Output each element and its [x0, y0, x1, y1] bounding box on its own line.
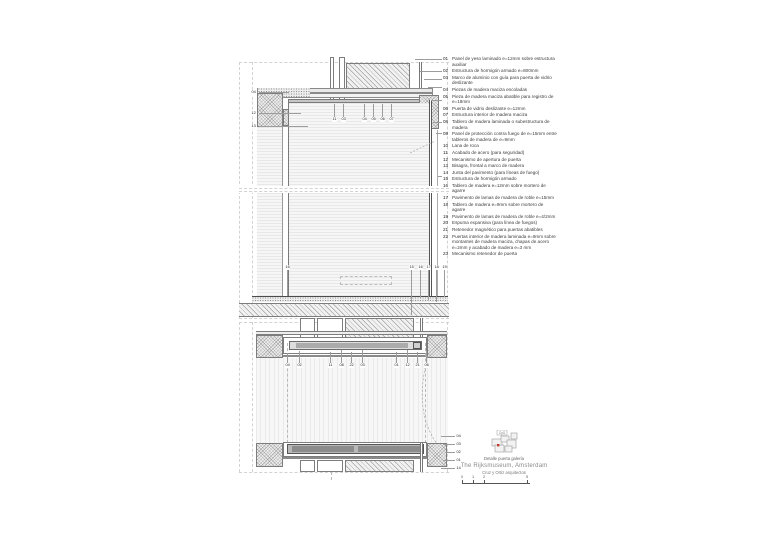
leader-line	[351, 352, 352, 363]
section-border-bottom	[239, 318, 449, 319]
scale-label: 2	[483, 475, 485, 479]
title-block: CyO Detalle puerta galería The Rijksmuse…	[452, 430, 556, 475]
legend-item-text: Junta del pavimento (para líneas de fueg…	[452, 170, 539, 176]
site-plan-icon: CyO	[486, 430, 520, 456]
bottom-door-leaf-1	[292, 446, 354, 452]
plan-border-left2	[252, 322, 253, 472]
legend-item: 07Estructura interior de madera maciza	[443, 112, 557, 118]
legend-item-number: 23	[443, 251, 450, 257]
plan-border-left	[239, 322, 240, 472]
legend-item-text: Piezas de madera maciza encoladas	[452, 87, 527, 93]
leader-line	[426, 350, 427, 363]
legend-item: 13Bisagra, frontal a marco de madera	[443, 163, 557, 169]
legend-item: 15Estructura de hormigón armado	[443, 176, 557, 182]
scale-tick	[484, 480, 485, 483]
legend-item-text: Espuma expansiva (para línea de fuegos)	[452, 220, 537, 226]
leader-line	[373, 104, 374, 117]
scale-bar: 0125	[462, 475, 530, 485]
wall-lining-left	[257, 127, 283, 296]
leader-line	[420, 71, 442, 72]
leader-line	[415, 59, 442, 60]
leader-line	[259, 92, 289, 93]
callout-01: 01	[456, 458, 461, 463]
legend-item: 12Mecanismo de apertura de puerta	[443, 157, 557, 163]
legend-item: 23Mecanismo retenedor de puerta	[443, 251, 557, 257]
callout-12: 12	[251, 111, 256, 116]
legend-item: 09Panel de protección contra fuego de e=…	[443, 131, 557, 142]
scale-tick	[527, 480, 528, 483]
legend-item-number: 20	[443, 220, 450, 226]
leader-line	[407, 350, 408, 363]
legend-item: 14Junta del pavimento (para líneas de fu…	[443, 170, 557, 176]
legend-item-number: 01	[443, 56, 450, 67]
leader-line	[436, 270, 437, 302]
legend: 01Panel de yeso laminado e=12mm sobre es…	[443, 56, 557, 258]
legend-item-number: 07	[443, 112, 450, 118]
sheet-title: The Rijksmuseum, Amsterdam	[452, 463, 556, 469]
callout-22: 22	[349, 363, 354, 368]
callout-02: 02	[456, 450, 461, 455]
callout-05: 05	[371, 117, 376, 122]
callout-04: 04	[285, 363, 290, 368]
plan-bottom-post-a	[300, 460, 315, 472]
plan-block-left	[256, 335, 283, 358]
callout-03: 03	[341, 117, 346, 122]
callout-17: 17	[426, 265, 431, 270]
scale-label: 5	[526, 475, 528, 479]
door-end-cap	[413, 342, 421, 349]
leader-line	[287, 270, 288, 296]
legend-item-text: Acabado de acero (para seguridad)	[452, 150, 524, 156]
callout-04: 04	[251, 90, 256, 95]
leader-line	[424, 79, 442, 80]
callout-11: 11	[332, 117, 337, 122]
leader-line	[428, 87, 442, 88]
legend-item-text: Estructura interior de madera maciza	[452, 112, 527, 118]
callout-11: 11	[328, 363, 333, 368]
callout-06: 06	[424, 363, 429, 368]
callout-03: 03	[360, 363, 365, 368]
scale-label: 1	[472, 475, 474, 479]
callout-04: 04	[456, 434, 461, 439]
plan-border-top	[239, 322, 449, 323]
callout-14: 14	[456, 466, 461, 471]
legend-item: 05Pieza de madera maciza abatible para r…	[443, 94, 557, 105]
legend-item: 21Retenedor magnético para puertas abati…	[443, 227, 557, 233]
legend-item: 19Pavimento de lamas de madera de roble …	[443, 214, 557, 220]
legend-item-number: 18	[443, 202, 450, 213]
legend-item-text: Estructura de hormigón armado e=800mm	[452, 68, 538, 74]
break-line-1	[239, 188, 449, 189]
leader-line	[444, 270, 445, 297]
floor-slab	[239, 303, 449, 317]
legend-item-text: Lana de roca	[452, 143, 479, 149]
legend-item-text: Tablero de madera e=9mm sobre mortero de…	[452, 202, 557, 213]
jamb-block-left	[257, 93, 283, 127]
legend-item-text: Mecanismo retenedor de puerta	[452, 251, 517, 257]
leader-line	[364, 104, 365, 117]
callout-16: 16	[285, 265, 290, 270]
legend-item-number: 17	[443, 195, 450, 201]
legend-item-text: Tablero de madera laminada o subestructu…	[452, 119, 557, 130]
leader-line	[287, 353, 288, 363]
leader-line	[330, 352, 331, 363]
legend-item-text: Puerta de vidrio deslizante e=12mm	[452, 106, 525, 112]
plan-icon-label: CyO	[499, 431, 506, 435]
plan-bottom-post-b	[317, 460, 343, 472]
legend-item-text: Puertas interior de madera laminada e=9m…	[452, 234, 557, 251]
callout-06: 06	[380, 117, 385, 122]
legend-item-text: Marco de aluminio con guía para puerta d…	[452, 75, 557, 86]
leader-line	[420, 270, 421, 298]
leader-line	[428, 270, 429, 300]
legend-item: 20Espuma expansiva (para línea de fuegos…	[443, 220, 557, 226]
leader-line	[433, 122, 442, 123]
legend-item: 22Puertas interior de madera laminada e=…	[443, 234, 557, 251]
legend-item-text: Tablero de madera e=12mm sobre mortero d…	[452, 183, 557, 194]
legend-item-text: Pavimento de lamas de madera de roble e=…	[452, 214, 555, 220]
plan-bottom-concrete	[345, 460, 414, 472]
plan-border-bottom	[239, 472, 449, 473]
legend-item: 11Acabado de acero (para seguridad)	[443, 150, 557, 156]
callout-03: 03	[456, 442, 461, 447]
leader-line	[299, 351, 300, 363]
legend-item-number: 03	[443, 75, 450, 86]
sliding-door-core	[296, 343, 408, 348]
legend-item: 03Marco de aluminio con guía para puerta…	[443, 75, 557, 86]
legend-item: 16Tablero de madera e=12mm sobre mortero…	[443, 183, 557, 194]
legend-item-number: 04	[443, 87, 450, 93]
legend-item-text: Retenedor magnético para puertas abatibl…	[452, 227, 543, 233]
plan-tail-dash	[331, 472, 332, 480]
legend-item: 18Tablero de madera e=9mm sobre mortero …	[443, 202, 557, 213]
floor-screed	[252, 297, 448, 302]
leader-line	[436, 133, 442, 134]
legend-item-number: 22	[443, 234, 450, 251]
drawing-sheet: 01Panel de yeso laminado e=12mm sobre es…	[0, 0, 780, 536]
recessed-handle-dashed	[340, 276, 392, 285]
leader-line	[417, 352, 418, 363]
leader-line	[259, 126, 308, 127]
legend-item: 02Estructura de hormigón armado e=800mm	[443, 68, 557, 74]
callout-02: 02	[297, 363, 302, 368]
legend-item-number: 05	[443, 94, 450, 105]
legend-item: 06Puerta de vidrio deslizante e=12mm	[443, 106, 557, 112]
scale-tick	[462, 480, 463, 483]
legend-item-text: Bisagra, frontal a marco de madera	[452, 163, 524, 169]
location-marker	[497, 444, 499, 446]
scale-label: 0	[461, 475, 463, 479]
callout-04: 04	[362, 117, 367, 122]
legend-item: 10Lana de roca	[443, 143, 557, 149]
legend-item-number: 15	[443, 176, 450, 182]
door-leaf	[288, 103, 429, 296]
plan-bottom-wall-edge	[420, 443, 423, 472]
legend-item-text: Pavimento de lamas de madera de roble e=…	[452, 195, 554, 201]
legend-item: 01Panel de yeso laminado e=12mm sobre es…	[443, 56, 557, 67]
callout-01: 01	[394, 363, 399, 368]
break-line-2	[239, 191, 449, 192]
leader-line	[362, 350, 363, 363]
callout-19: 19	[442, 265, 447, 270]
callout-08: 08	[339, 363, 344, 368]
legend-item-number: 16	[443, 183, 450, 194]
callout-07: 07	[389, 117, 394, 122]
callout-13: 13	[251, 124, 256, 129]
plan-bottom-block-right	[427, 443, 447, 467]
legend-item-number: 09	[443, 131, 450, 142]
leader-line	[382, 104, 383, 117]
leader-line	[411, 270, 412, 315]
legend-item-text: Panel de protección contra fuego de e=15…	[452, 131, 557, 142]
legend-item-number: 08	[443, 119, 450, 130]
leader-line	[431, 100, 442, 101]
legend-item-number: 12	[443, 157, 450, 163]
plan-bottom-block-left	[256, 443, 283, 467]
callout-21: 21	[415, 363, 420, 368]
callout-16: 16	[418, 265, 423, 270]
callout-18: 18	[434, 265, 439, 270]
leader-line	[343, 104, 344, 117]
legend-item-number: 06	[443, 106, 450, 112]
legend-item-text: Estructura de hormigón armado	[452, 176, 517, 182]
legend-item-number: 19	[443, 214, 450, 220]
slope-mark	[408, 138, 438, 156]
plan-top-band	[256, 331, 447, 335]
legend-item-text: Mecanismo de apertura de puerta	[452, 157, 521, 163]
legend-item: 17Pavimento de lamas de madera de roble …	[443, 195, 557, 201]
leader-line	[396, 352, 397, 363]
legend-item-number: 21	[443, 227, 450, 233]
sheet-architect: Cruz y Ortiz arquitectos	[452, 470, 556, 475]
leader-line	[259, 113, 301, 114]
leader-line	[334, 104, 335, 117]
sheet-caption: Detalle puerta galería	[452, 456, 556, 461]
leader-line	[438, 176, 442, 177]
legend-item-number: 02	[443, 68, 450, 74]
callout-15: 15	[409, 265, 414, 270]
legend-item-text: Pieza de madera maciza abatible para reg…	[452, 94, 557, 105]
leader-line	[341, 350, 342, 363]
legend-item-number: 14	[443, 170, 450, 176]
scale-bar-line	[462, 483, 530, 484]
scale-tick	[473, 480, 474, 483]
bottom-door-leaf-2	[358, 446, 420, 452]
callout-12: 12	[405, 363, 410, 368]
legend-item-number: 10	[443, 143, 450, 149]
legend-item-number: 13	[443, 163, 450, 169]
bottom-under-lines	[283, 457, 427, 459]
leader-line	[391, 104, 392, 117]
legend-item-text: Panel de yeso laminado e=12mm sobre estr…	[452, 56, 557, 67]
legend-item: 04Piezas de madera maciza encoladas	[443, 87, 557, 93]
legend-item-number: 11	[443, 150, 450, 156]
legend-item: 08Tablero de madera laminada o subestruc…	[443, 119, 557, 130]
